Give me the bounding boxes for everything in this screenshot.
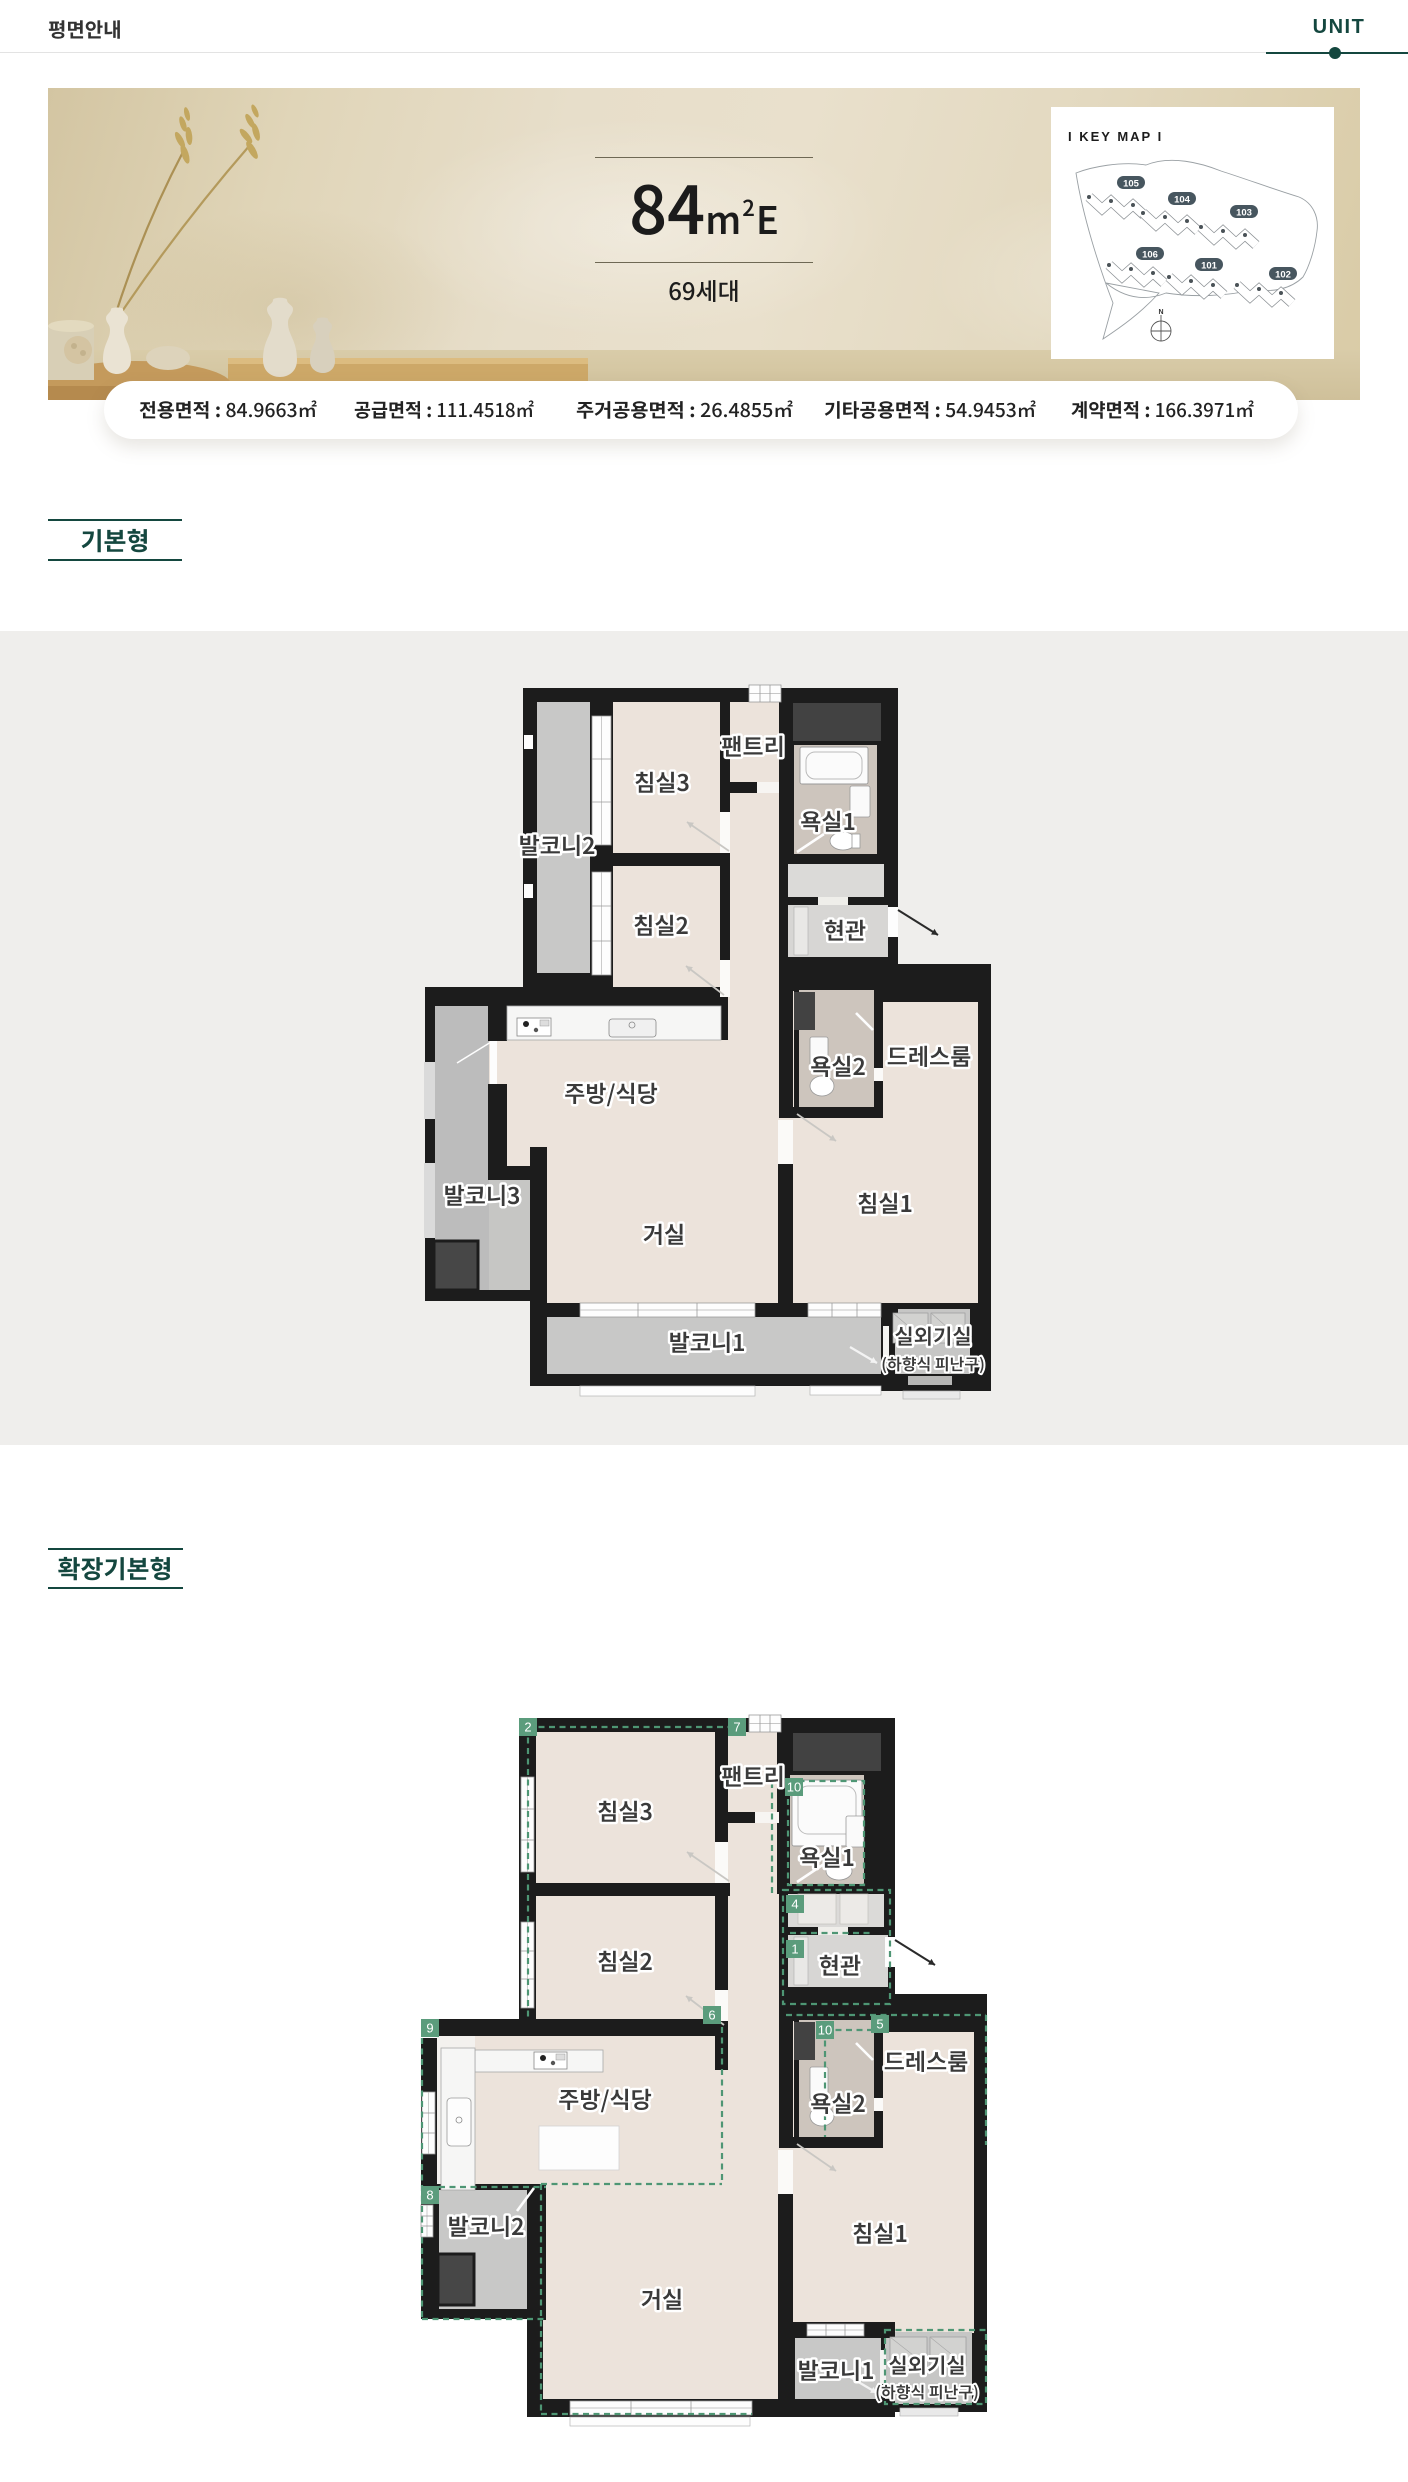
svg-text:106: 106	[1142, 250, 1158, 261]
svg-text:6: 6	[708, 2008, 715, 2023]
svg-text:5: 5	[876, 2017, 883, 2032]
svg-text:10: 10	[787, 1780, 801, 1795]
svg-text:105: 105	[1123, 179, 1140, 190]
svg-text:10: 10	[818, 2023, 832, 2038]
svg-text:101: 101	[1201, 261, 1218, 272]
svg-text:103: 103	[1236, 208, 1252, 219]
svg-text:N: N	[1158, 309, 1163, 316]
svg-text:104: 104	[1174, 195, 1191, 206]
svg-text:7: 7	[733, 1720, 740, 1735]
svg-text:9: 9	[426, 2021, 433, 2036]
svg-text:2: 2	[524, 1720, 531, 1735]
svg-text:I KEY MAP I: I KEY MAP I	[1068, 129, 1163, 144]
svg-text:102: 102	[1275, 270, 1291, 281]
svg-text:1: 1	[791, 1942, 798, 1957]
svg-text:4: 4	[791, 1897, 798, 1912]
svg-text:8: 8	[426, 2188, 433, 2203]
